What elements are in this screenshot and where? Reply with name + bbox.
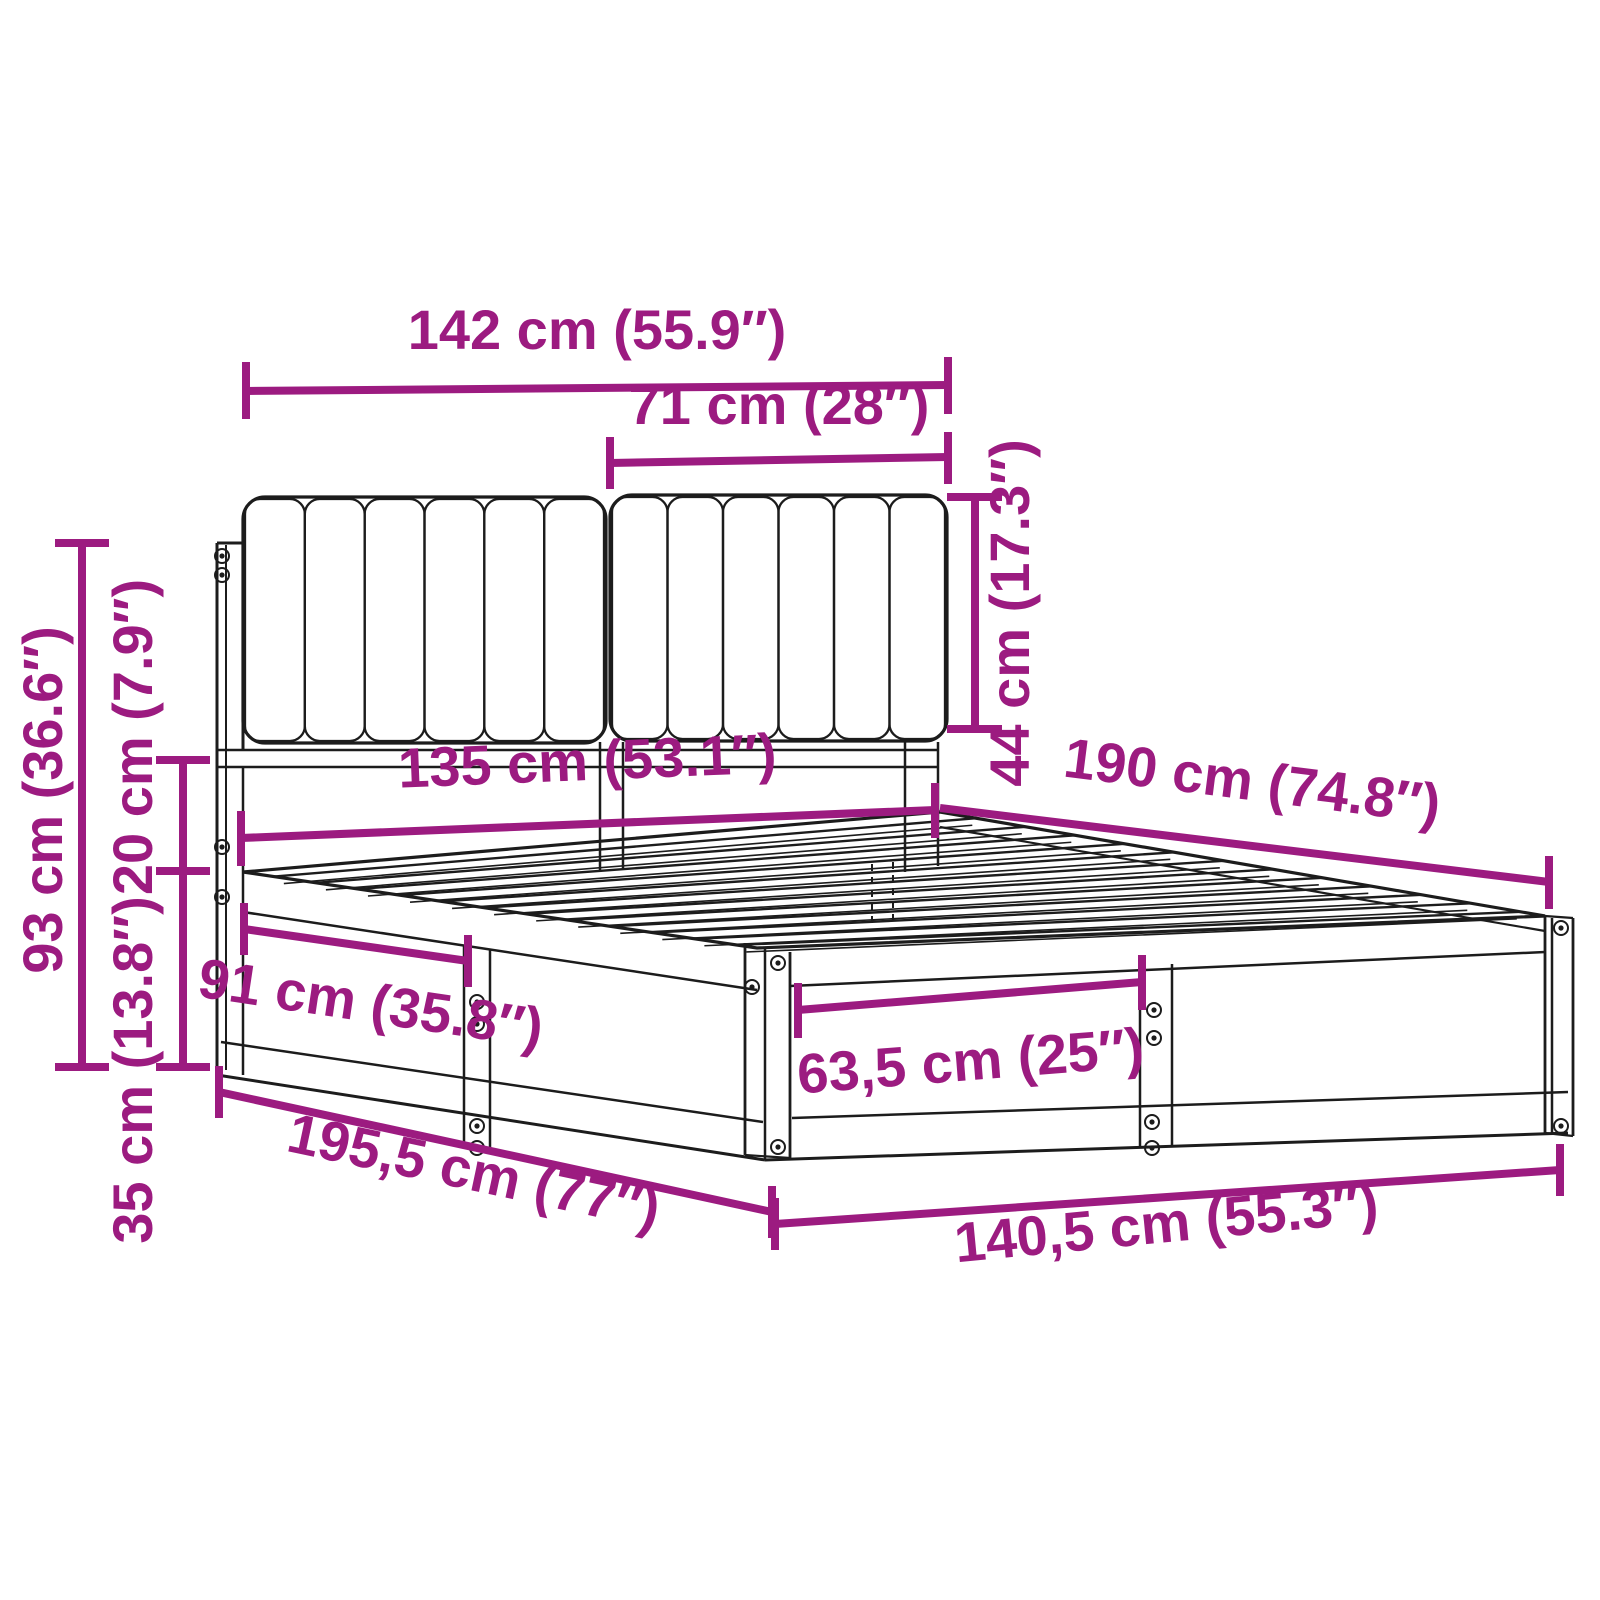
dimension-label-headboard-cushion-width: 71 cm (28″) [629, 373, 930, 436]
cushion-rib [779, 497, 835, 739]
right-corner-post [1545, 916, 1573, 1136]
cushion-rib [890, 497, 946, 739]
screw-dot [775, 1144, 780, 1149]
screw-dot [219, 553, 224, 558]
screw-dot [1558, 925, 1563, 930]
front-corner-post [745, 943, 790, 1160]
dimension-label-cushion-to-base-gap: 20 cm (7.9″) [101, 579, 164, 895]
screw-dot [1149, 1145, 1154, 1150]
cushion-rib [544, 499, 604, 741]
dimension-label-headboard-cushion-height: 44 cm (17.3″) [978, 439, 1041, 786]
cushion-rib [612, 497, 668, 739]
dimension-headboard-total-height: 93 cm (36.6″) [11, 543, 109, 1067]
dimension-label-side-panel-length: 91 cm (35.8″) [194, 946, 547, 1060]
dimension-label-front-panel-length: 63,5 cm (25″) [795, 1016, 1146, 1106]
cushion-rib [668, 497, 724, 739]
dimension-headboard-cushion-height: 44 cm (17.3″) [947, 439, 1041, 786]
screw-dot [219, 844, 224, 849]
screw-dot [1151, 1007, 1156, 1012]
cushion-rib [834, 497, 890, 739]
cushion-rib [723, 497, 779, 739]
dimension-label-base-frame-height: 35 cm (13.8″) [101, 896, 164, 1243]
cushion-rib [365, 499, 425, 741]
screw-dot [1149, 1119, 1154, 1124]
screw-dot [775, 960, 780, 965]
dimension-headboard-cushion-width: 71 cm (28″) [610, 373, 948, 489]
dimension-label-total-width: 140,5 cm (55.3″) [951, 1171, 1380, 1274]
dimension-total-width: 140,5 cm (55.3″) [775, 1144, 1560, 1274]
dimension-label-headboard-total-width: 142 cm (55.9″) [408, 298, 787, 361]
screw-dot [1558, 1123, 1563, 1128]
screw-dot [749, 984, 754, 989]
headboard-cushion-right [610, 495, 947, 741]
cushion-rib [245, 499, 305, 741]
screw-dot [219, 572, 224, 577]
cushion-rib [425, 499, 485, 741]
screw-dot [219, 894, 224, 899]
dimension-label-frame-inner-width: 135 cm (53.1″) [397, 721, 778, 799]
headboard-cushion-left [243, 497, 606, 743]
dimension-label-mattress-length: 190 cm (74.8″) [1061, 726, 1445, 836]
screw-dot [1151, 1035, 1156, 1040]
bed-diagram-canvas: 142 cm (55.9″) 71 cm (28″) 44 cm (17.3″)… [0, 0, 1600, 1600]
dimension-total-length: 195,5 cm (77″) [219, 1066, 772, 1241]
dimension-label-total-length: 195,5 cm (77″) [282, 1101, 665, 1241]
screw-dot [474, 1123, 479, 1128]
dimension-label-headboard-total-height: 93 cm (36.6″) [11, 626, 74, 973]
dimension-side-panel-length: 91 cm (35.8″) [194, 903, 547, 1060]
cushion-rib [305, 499, 365, 741]
cushion-rib [484, 499, 544, 741]
dimension-cushion-to-base-gap: 20 cm (7.9″) 35 cm (13.8″) [101, 579, 210, 1244]
dimension-diagram: 142 cm (55.9″) 71 cm (28″) 44 cm (17.3″)… [0, 0, 1600, 1600]
